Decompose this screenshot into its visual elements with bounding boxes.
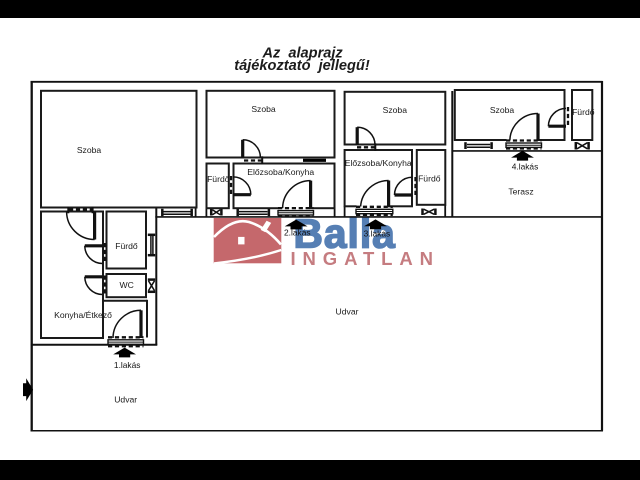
svg-text:Szoba: Szoba [77,145,102,155]
svg-text:WC: WC [120,280,134,290]
svg-text:3.lakás: 3.lakás [364,229,391,239]
svg-text:Udvar: Udvar [114,395,137,405]
svg-text:Fürdő: Fürdő [418,173,441,183]
svg-text:Előzsoba/Konyha: Előzsoba/Konyha [345,158,412,168]
svg-text:Szoba: Szoba [490,105,515,115]
svg-text:Fürdő: Fürdő [115,241,138,251]
svg-text:Konyha/Étkező: Konyha/Étkező [54,310,112,320]
svg-text:Előzsoba/Konyha: Előzsoba/Konyha [247,167,314,177]
svg-text:Fürdő: Fürdő [207,174,230,184]
svg-text:Udvar: Udvar [336,307,359,317]
svg-text:INGATLAN: INGATLAN [291,248,440,269]
svg-text:Terasz: Terasz [508,187,533,197]
svg-text:2.lakás: 2.lakás [284,227,311,237]
svg-text:tájékoztató jellegű!: tájékoztató jellegű! [234,58,370,74]
svg-text:4.lakás: 4.lakás [512,161,539,171]
svg-text:Fürdő: Fürdő [572,107,595,117]
svg-text:Szoba: Szoba [383,105,408,115]
svg-text:Szoba: Szoba [251,104,276,114]
svg-text:1.lakás: 1.lakás [114,360,141,370]
